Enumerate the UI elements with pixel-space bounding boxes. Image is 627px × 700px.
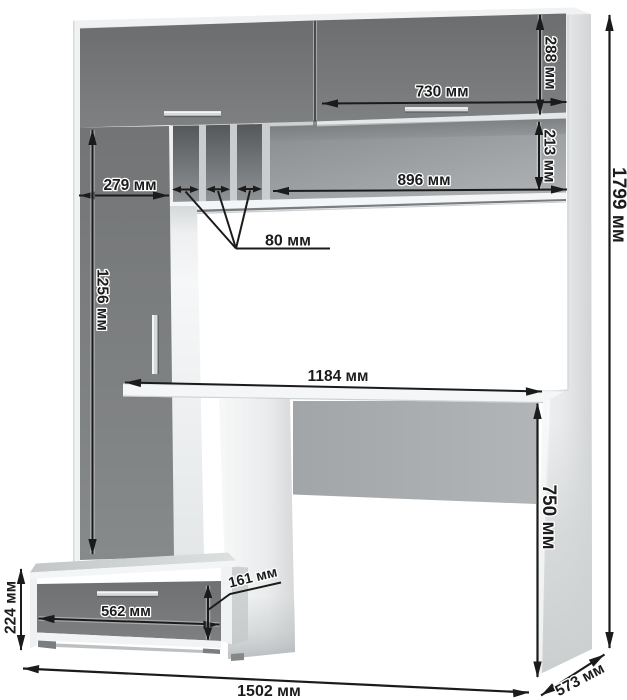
svg-text:279 мм: 279 мм — [103, 177, 156, 194]
svg-text:562 мм: 562 мм — [101, 604, 151, 620]
svg-text:750 мм: 750 мм — [538, 484, 559, 549]
svg-text:1184 мм: 1184 мм — [308, 368, 369, 385]
svg-text:80 мм: 80 мм — [265, 233, 311, 250]
svg-text:1799 мм: 1799 мм — [608, 167, 627, 243]
svg-text:1256 мм: 1256 мм — [94, 269, 111, 331]
svg-text:213 мм: 213 мм — [541, 129, 558, 182]
svg-text:288 мм: 288 мм — [542, 36, 559, 89]
svg-text:224 мм: 224 мм — [3, 581, 20, 634]
svg-text:1502 мм: 1502 мм — [237, 683, 301, 700]
svg-text:896 мм: 896 мм — [397, 172, 450, 189]
svg-text:730 мм: 730 мм — [415, 84, 468, 101]
